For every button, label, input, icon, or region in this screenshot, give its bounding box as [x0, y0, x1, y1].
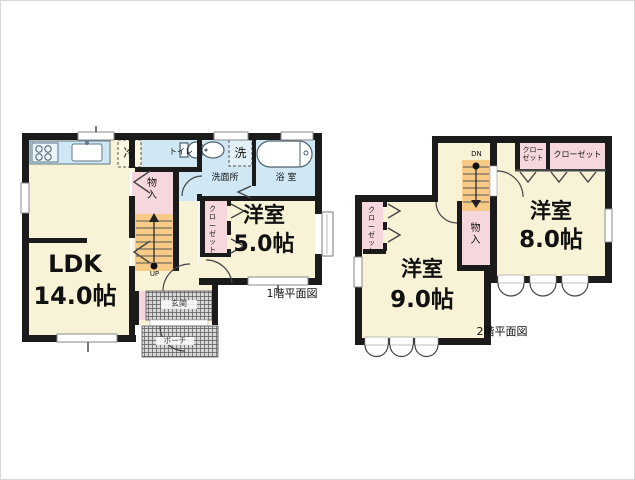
western-room5-name-label: 洋室: [226, 204, 302, 226]
western-room9-size-label: 9.0帖: [369, 288, 475, 312]
storage2-label: 物入: [469, 223, 482, 247]
washer-label: 洗: [229, 147, 252, 160]
casement-window-arc: [530, 283, 556, 296]
closet2-left-label: クローゼット: [366, 206, 377, 256]
casement-window-arc: [498, 283, 524, 296]
floor2-caption: 2階平面図: [466, 326, 538, 338]
toilet-label: トイレ: [166, 148, 196, 156]
casement-window-arc: [562, 283, 588, 296]
bay-window: [315, 212, 333, 256]
floor1-caption: 1階平面図: [256, 288, 328, 300]
western-room5-size-label: 5.0帖: [221, 233, 307, 256]
kitchen-divider-wall: [22, 238, 87, 243]
western-room9-name-label: 洋室: [374, 258, 470, 280]
washbasin-icon: [202, 142, 224, 158]
western-room8-size-label: 8.0帖: [498, 228, 604, 252]
kitchen-counter-icon: [30, 141, 110, 164]
casement-window-arc: [415, 345, 438, 357]
ldk-size-label: 14.0帖: [14, 284, 136, 309]
stairs-up-label: UP: [145, 271, 164, 278]
western-room8-name-label: 洋室: [503, 200, 599, 222]
closet1-label: クローゼット: [207, 205, 218, 255]
closet2-wide-label: クローゼット: [550, 151, 605, 159]
casement-window-arc: [390, 345, 413, 357]
fridge-label: 冷: [118, 147, 141, 160]
bath-label: 浴 室: [262, 174, 310, 183]
entrance-label: 玄関: [161, 300, 197, 309]
casement-window-arc: [365, 345, 388, 357]
stairs-down-label: DN: [467, 151, 486, 158]
bathtub-icon: [257, 141, 312, 167]
floor-plan-image: LDK 14.0帖 洋室 5.0帖 冷 トイレ 洗 洗面所 浴 室 物入 クロー…: [0, 0, 635, 480]
porch-label: ポーチ: [156, 337, 194, 345]
washroom-label: 洗面所: [203, 174, 247, 183]
closet2-small-label: クローゼット: [520, 146, 546, 163]
storage1-label: 物入: [146, 178, 158, 202]
ldk-name-label: LDK: [27, 252, 123, 277]
